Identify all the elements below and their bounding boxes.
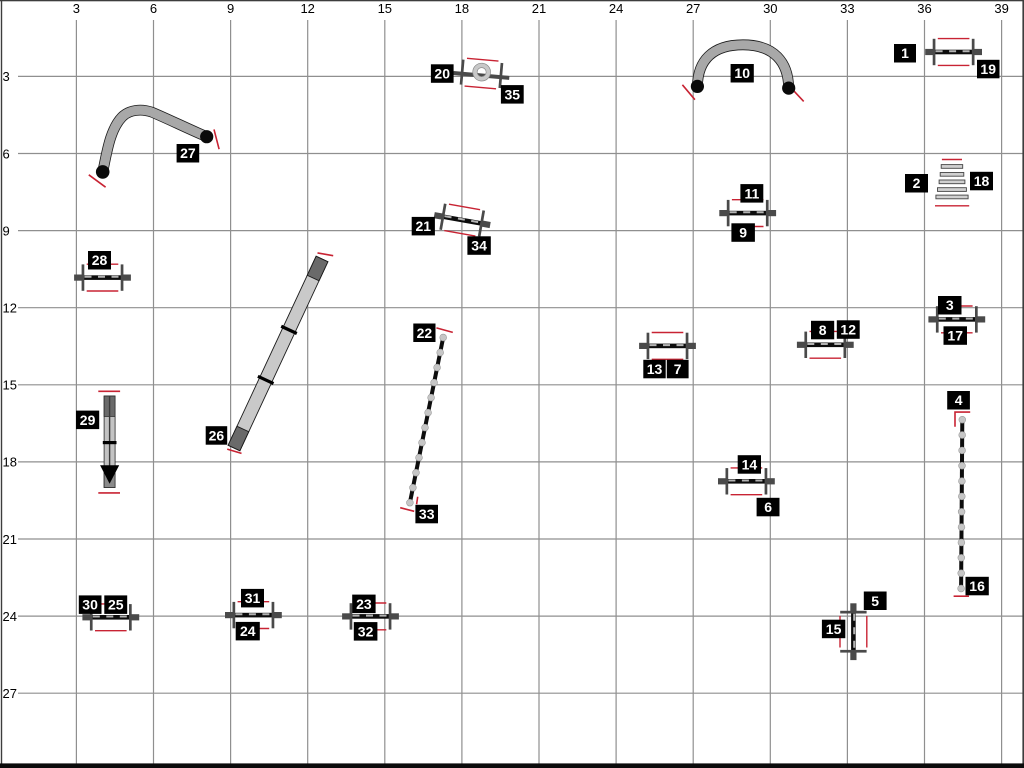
svg-text:34: 34 — [471, 238, 487, 254]
svg-text:20: 20 — [434, 66, 450, 82]
svg-text:10: 10 — [734, 65, 750, 81]
svg-text:30: 30 — [82, 597, 98, 613]
svg-text:15: 15 — [3, 378, 17, 393]
svg-text:24: 24 — [609, 1, 623, 16]
svg-text:3: 3 — [3, 69, 10, 84]
svg-text:3: 3 — [73, 1, 80, 16]
svg-text:24: 24 — [240, 623, 256, 639]
svg-text:36: 36 — [917, 1, 931, 16]
svg-text:15: 15 — [378, 1, 392, 16]
svg-text:22: 22 — [417, 325, 433, 341]
svg-text:33: 33 — [840, 1, 854, 16]
svg-text:6: 6 — [3, 146, 10, 161]
svg-text:18: 18 — [455, 1, 469, 16]
svg-text:5: 5 — [871, 593, 879, 609]
svg-text:12: 12 — [300, 1, 314, 16]
svg-text:21: 21 — [3, 532, 17, 547]
svg-text:2: 2 — [913, 175, 921, 191]
svg-text:16: 16 — [969, 578, 985, 594]
svg-text:21: 21 — [532, 1, 546, 16]
svg-text:19: 19 — [980, 61, 996, 77]
svg-text:29: 29 — [80, 412, 96, 428]
svg-text:31: 31 — [245, 590, 261, 606]
svg-text:24: 24 — [3, 609, 17, 624]
svg-text:23: 23 — [356, 596, 372, 612]
svg-text:11: 11 — [744, 185, 759, 201]
svg-text:21: 21 — [416, 218, 432, 234]
svg-text:14: 14 — [742, 456, 758, 472]
svg-text:6: 6 — [764, 499, 772, 515]
svg-text:28: 28 — [92, 252, 108, 268]
svg-text:27: 27 — [180, 145, 196, 161]
svg-text:32: 32 — [358, 623, 374, 639]
svg-text:13: 13 — [647, 361, 663, 377]
svg-text:6: 6 — [150, 1, 157, 16]
svg-text:15: 15 — [826, 621, 842, 637]
svg-text:9: 9 — [227, 1, 234, 16]
svg-text:18: 18 — [3, 455, 17, 470]
svg-text:39: 39 — [994, 1, 1008, 16]
svg-text:18: 18 — [974, 173, 990, 189]
svg-text:12: 12 — [3, 301, 17, 316]
svg-text:26: 26 — [209, 427, 225, 443]
svg-text:30: 30 — [763, 1, 777, 16]
svg-text:27: 27 — [686, 1, 700, 16]
svg-text:17: 17 — [947, 328, 963, 344]
svg-text:35: 35 — [505, 86, 521, 102]
svg-text:33: 33 — [419, 506, 435, 522]
svg-text:9: 9 — [3, 223, 10, 238]
svg-text:8: 8 — [819, 322, 827, 338]
svg-text:27: 27 — [3, 686, 17, 701]
svg-text:7: 7 — [674, 361, 682, 377]
svg-text:9: 9 — [739, 225, 747, 241]
svg-text:1: 1 — [901, 45, 909, 61]
svg-text:3: 3 — [946, 297, 954, 313]
svg-text:4: 4 — [955, 392, 963, 408]
svg-text:25: 25 — [108, 597, 124, 613]
svg-text:12: 12 — [840, 322, 856, 338]
